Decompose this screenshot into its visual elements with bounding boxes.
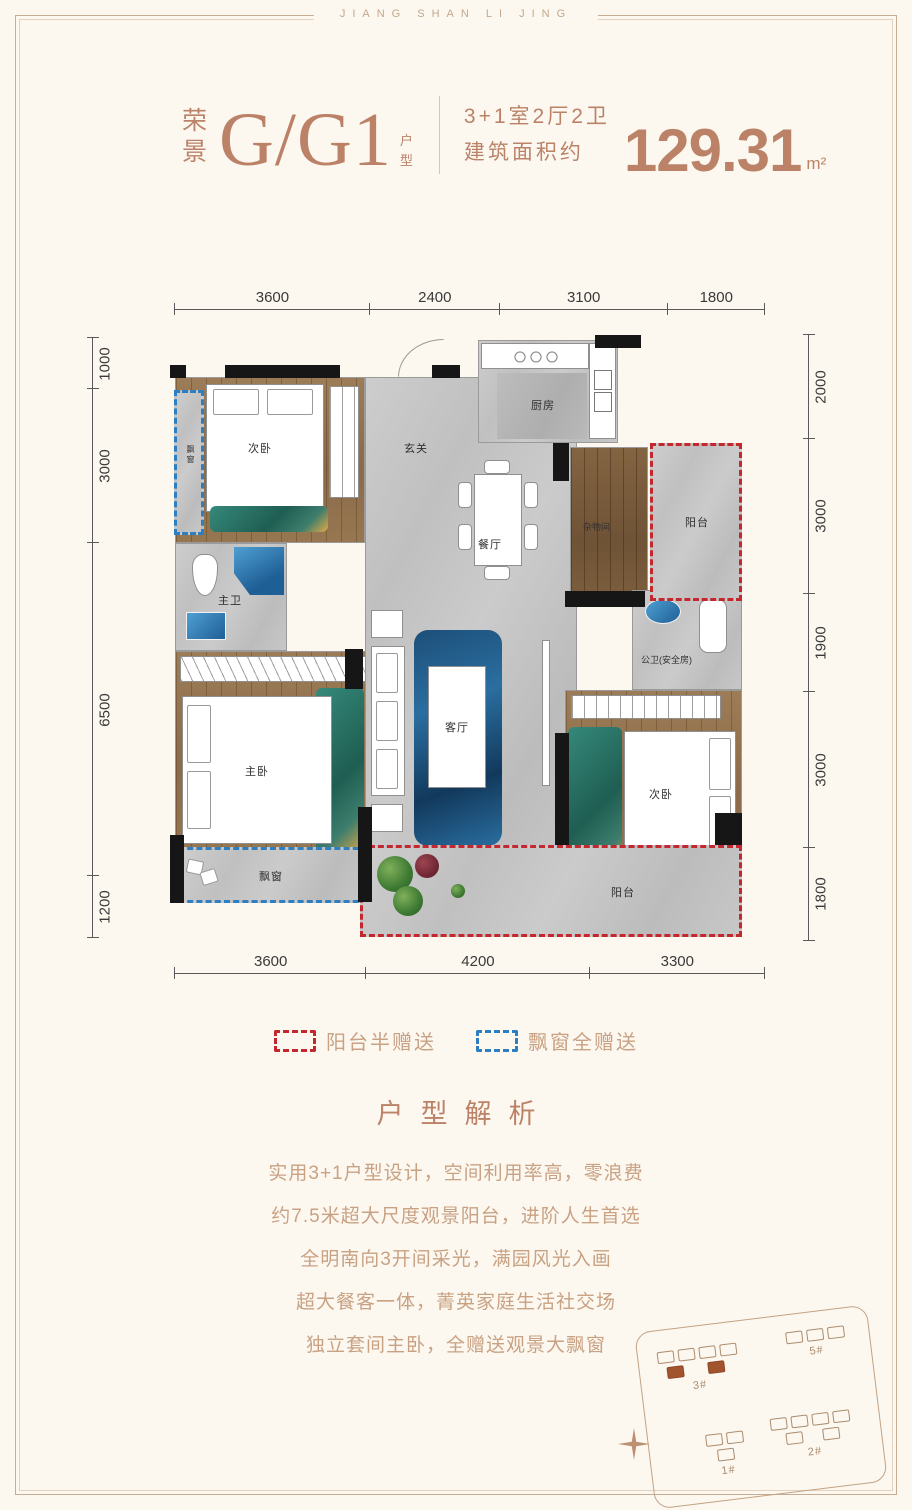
dimensions-right: 2000 3000 1900 3000 1800 (808, 335, 832, 941)
dimension-label: 3100 (567, 289, 600, 306)
prefix-char: 景 (182, 137, 209, 168)
room-storage: 杂物间 (570, 447, 648, 605)
dimensions-bottom: 3600 4200 3300 (175, 952, 765, 974)
dimension-label: 3000 (812, 500, 829, 533)
wardrobe (571, 695, 721, 719)
dimension-label: 1000 (96, 347, 113, 380)
wall-segment (555, 733, 569, 845)
dimension-label: 3000 (812, 753, 829, 786)
shower (234, 547, 284, 595)
sink (594, 392, 612, 412)
room-kitchen: 厨房 (478, 340, 618, 443)
stove (512, 347, 560, 367)
analysis-title: 户型解析 (0, 1092, 912, 1131)
bathtub (699, 599, 727, 653)
sink (645, 599, 681, 624)
wall-segment (345, 649, 363, 689)
wall-segment (553, 443, 569, 481)
chair (458, 482, 472, 508)
area-figure: 129.31 m² (624, 125, 826, 176)
room-label: 主卧 (245, 763, 269, 779)
header-divider (439, 96, 440, 174)
room-label: 玄关 (404, 440, 428, 456)
balcony-top: 阳台 (650, 443, 742, 601)
chair (524, 482, 538, 508)
wall-segment (595, 335, 641, 348)
dimension-label: 3000 (96, 450, 113, 483)
room-label: 公卫(安全房) (641, 653, 692, 666)
dimension-label: 4200 (461, 953, 494, 970)
building-cluster-1: 1# (705, 1430, 748, 1478)
wall-segment (358, 807, 372, 902)
dimension-label: 3300 (661, 953, 694, 970)
dimension-label: 1800 (700, 289, 733, 306)
bed: 主卧 (182, 696, 332, 844)
wardrobe (329, 386, 359, 498)
wall-segment (225, 365, 340, 378)
room-label: 阳台 (611, 884, 635, 900)
room-label: 厨房 (531, 397, 555, 413)
room-entry-dining-living: 玄关 餐厅 客厅 (365, 377, 577, 867)
spec-area-caption: 建筑面积约 (464, 135, 610, 172)
room-label: 次卧 (649, 786, 673, 802)
dimension-label: 3600 (254, 953, 287, 970)
highlighted-building (707, 1360, 725, 1374)
dimension-label: 1200 (96, 891, 113, 924)
dining-table (474, 474, 522, 566)
bench (210, 506, 328, 532)
suffix-char: 型 (400, 151, 413, 171)
dimension-label: 2400 (418, 289, 451, 306)
analysis-line: 约7.5米超大尺度观景阳台，进阶人生首选 (0, 1195, 912, 1238)
dimensions-left: 1000 3000 6500 1200 (92, 338, 116, 938)
brand-banner: JIANG SHAN LI JING (314, 8, 598, 20)
unit-name: G/G1 (219, 106, 392, 176)
plant (393, 886, 423, 916)
unit-specs: 3+1室2厅2卫 建筑面积约 (464, 99, 610, 177)
room-guest-bath: 公卫(安全房) (632, 590, 742, 690)
legend-label: 阳台半赠送 (326, 1026, 436, 1055)
unit-suffix: 户 型 (400, 131, 413, 176)
area-unit: m² (806, 152, 826, 176)
floor-plan: 次卧 飘窗 主卫 主卧 飘窗 (170, 335, 745, 940)
legend-balcony: 阳台半赠送 (274, 1026, 436, 1055)
wall-segment (715, 813, 742, 845)
room-label: 阳台 (685, 514, 709, 530)
legend-label: 飘窗全赠送 (528, 1026, 638, 1055)
plan-legend: 阳台半赠送 飘窗全赠送 (0, 1026, 912, 1055)
analysis-line: 实用3+1户型设计，空间利用率高，零浪费 (0, 1152, 912, 1195)
red-dash-swatch (274, 1030, 316, 1052)
unit-prefix: 荣 景 (182, 106, 209, 177)
dimension-label: 1800 (812, 878, 829, 911)
dimension-label: 6500 (96, 693, 113, 726)
sink (186, 612, 226, 640)
plant (451, 884, 465, 898)
area-value: 129.31 (624, 125, 802, 176)
dimension-label: 2000 (812, 370, 829, 403)
wall-segment (432, 365, 460, 378)
chair (524, 524, 538, 550)
side-table (371, 804, 403, 832)
room-label: 杂物间 (583, 520, 610, 533)
chair (484, 566, 510, 580)
room-label: 客厅 (445, 719, 469, 735)
blue-dash-swatch (476, 1030, 518, 1052)
coffee-table: 客厅 (428, 666, 486, 788)
room-label: 飘窗 (185, 445, 196, 465)
dimension-label: 3600 (256, 289, 289, 306)
room-label: 主卫 (218, 592, 242, 608)
bay-window-top: 飘窗 (174, 390, 204, 535)
tv-cabinet (542, 640, 550, 786)
floorplan-poster: JIANG SHAN LI JING 荣 景 G/G1 户 型 3+1室2厅2卫… (0, 0, 912, 1510)
wall-segment (170, 365, 186, 378)
legend-bay-window: 飘窗全赠送 (476, 1026, 638, 1055)
room-label: 飘窗 (259, 868, 283, 884)
site-plan: 3# 5# 1# 2# (642, 1316, 880, 1498)
room-label: 餐厅 (478, 536, 502, 552)
wall-segment (170, 835, 184, 903)
suffix-char: 户 (400, 131, 413, 151)
room-label: 次卧 (248, 440, 272, 456)
wall-segment (565, 591, 645, 607)
sofa (371, 646, 405, 796)
prefix-char: 荣 (182, 106, 209, 137)
header: 荣 景 G/G1 户 型 3+1室2厅2卫 建筑面积约 129.31 m² (182, 96, 826, 176)
spec-rooms: 3+1室2厅2卫 (464, 99, 610, 136)
bay-window-bottom: 飘窗 (178, 847, 368, 903)
dimension-label: 1900 (812, 627, 829, 660)
kitchen-counter (589, 343, 616, 439)
sink (594, 370, 612, 390)
chair (484, 460, 510, 474)
toilet (192, 554, 218, 596)
dimensions-top: 3600 2400 3100 1800 (175, 288, 765, 310)
site-plan-boundary (634, 1304, 888, 1509)
balcony-bottom: 阳台 (360, 845, 742, 937)
kitchen-counter (481, 343, 589, 369)
room-master-bath: 主卫 (175, 543, 287, 651)
chair (458, 524, 472, 550)
highlighted-building (666, 1365, 684, 1379)
analysis-line: 全明南向3开间采光，满园风光入画 (0, 1238, 912, 1281)
side-table (371, 610, 403, 638)
plant (415, 854, 439, 878)
